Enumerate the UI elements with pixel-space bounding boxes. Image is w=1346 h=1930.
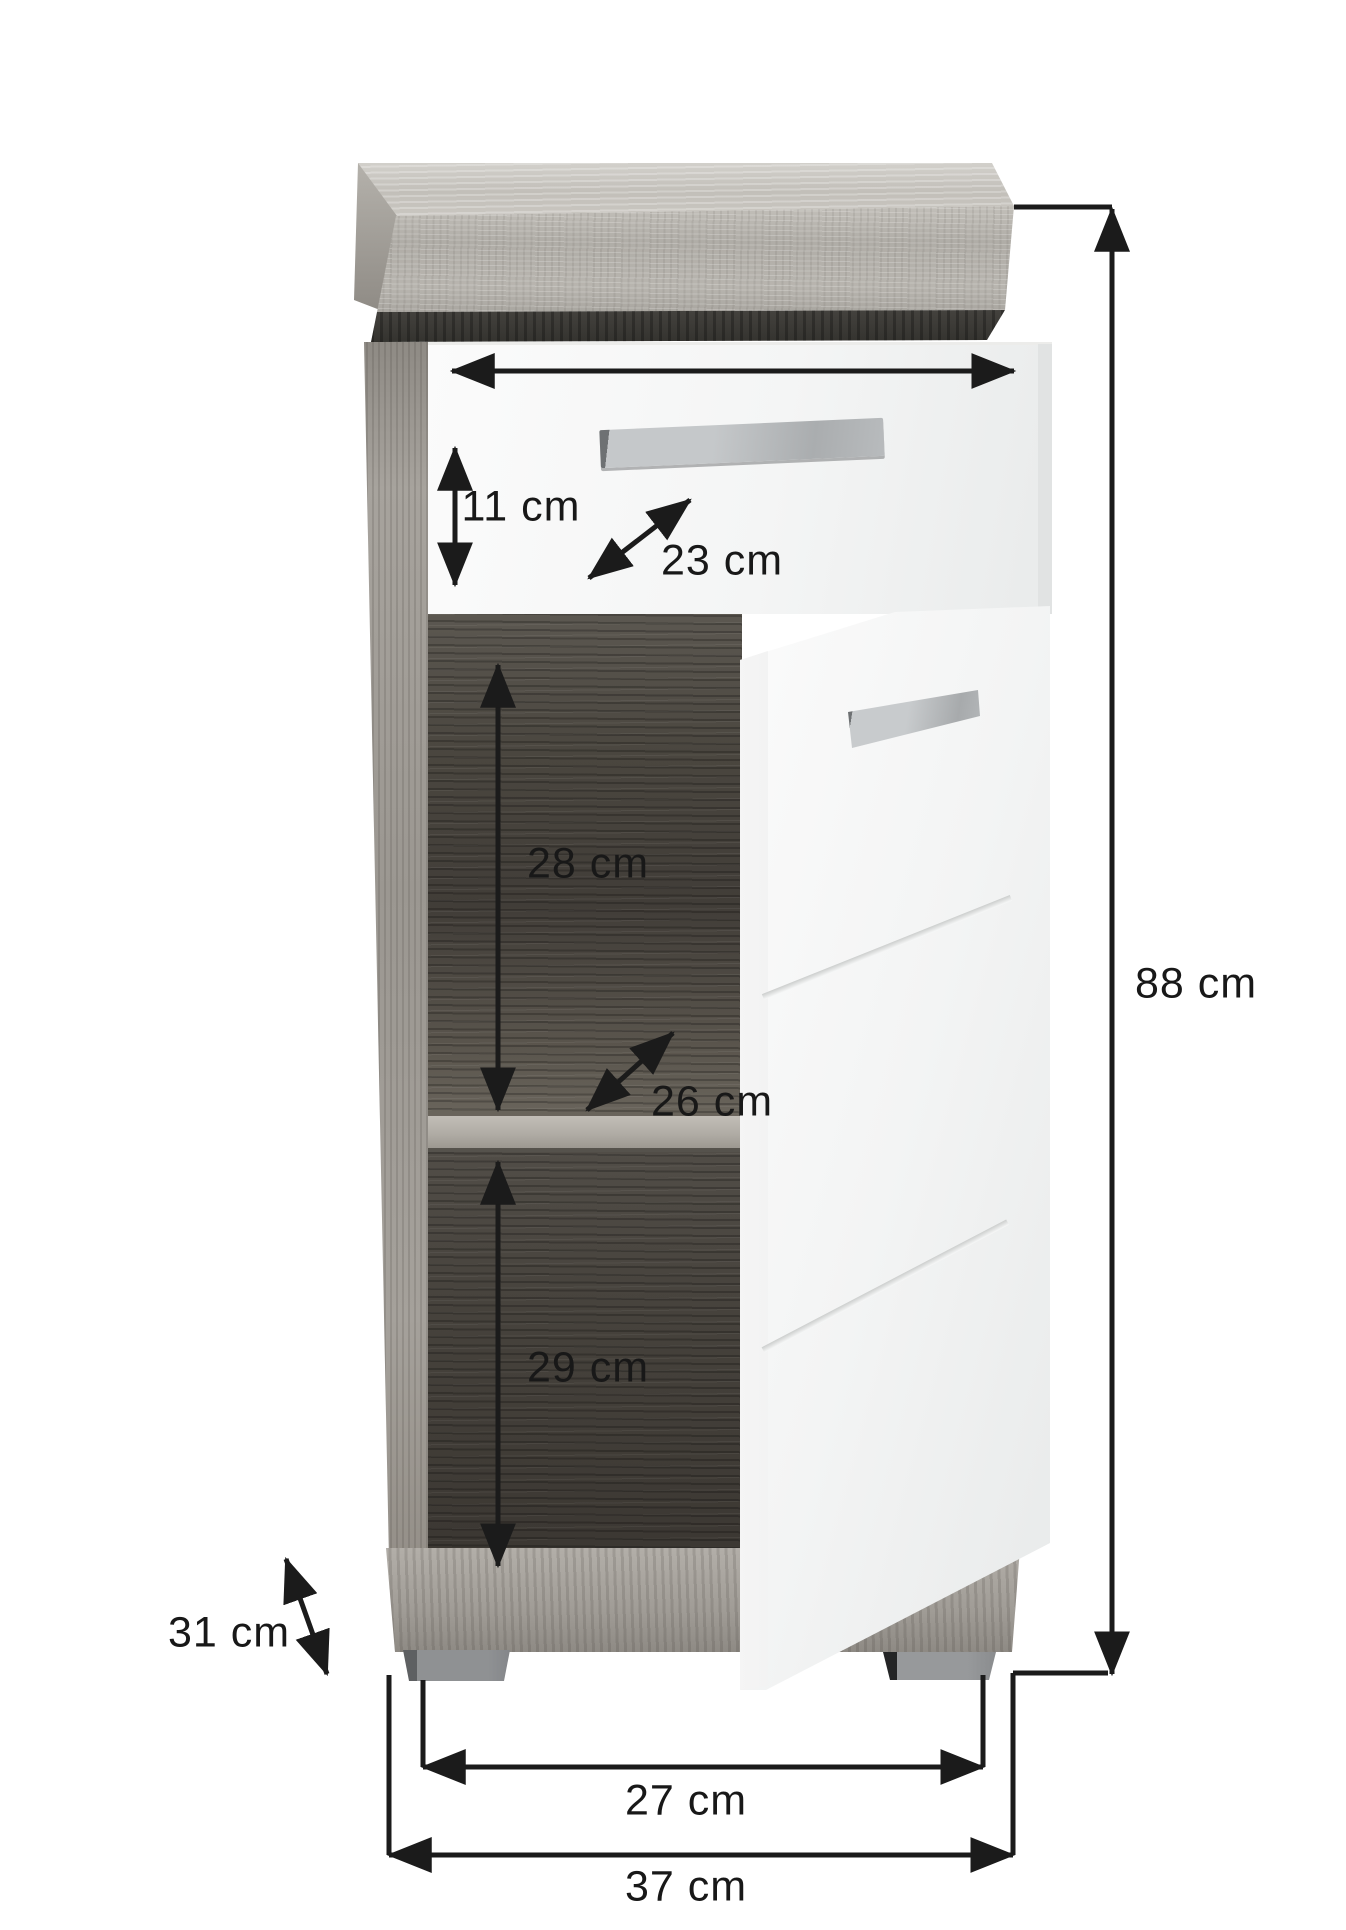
- cabinet-right-foot: [883, 1650, 996, 1680]
- cabinet-top-panel-front-edge: [377, 204, 1015, 314]
- cabinet-accent-strip: [371, 308, 1007, 344]
- dim-label-feet-span-width: 27 cm: [625, 1777, 747, 1826]
- drawer-side-edge: [1038, 344, 1052, 614]
- door-panel-open: [740, 594, 1052, 1692]
- dim-label-upper-compartment-height: 28 cm: [527, 840, 649, 889]
- dim-label-lower-compartment-height: 29 cm: [527, 1344, 649, 1393]
- product-dimension-diagram: 11 cm 23 cm 28 cm 26 cm 29 cm 88 cm 31 c…: [0, 0, 1346, 1930]
- cabinet-left-side-panel: [360, 342, 436, 1562]
- dim-label-total-depth: 31 cm: [168, 1609, 290, 1658]
- dim-label-drawer-front-height: 11 cm: [462, 483, 581, 532]
- dim-label-total-height: 88 cm: [1135, 960, 1257, 1009]
- dim-label-drawer-depth: 23 cm: [661, 537, 783, 586]
- dim-label-total-width: 37 cm: [625, 1863, 747, 1912]
- dim-label-shelf-depth: 26 cm: [651, 1078, 773, 1127]
- cabinet-left-foot: [403, 1650, 510, 1681]
